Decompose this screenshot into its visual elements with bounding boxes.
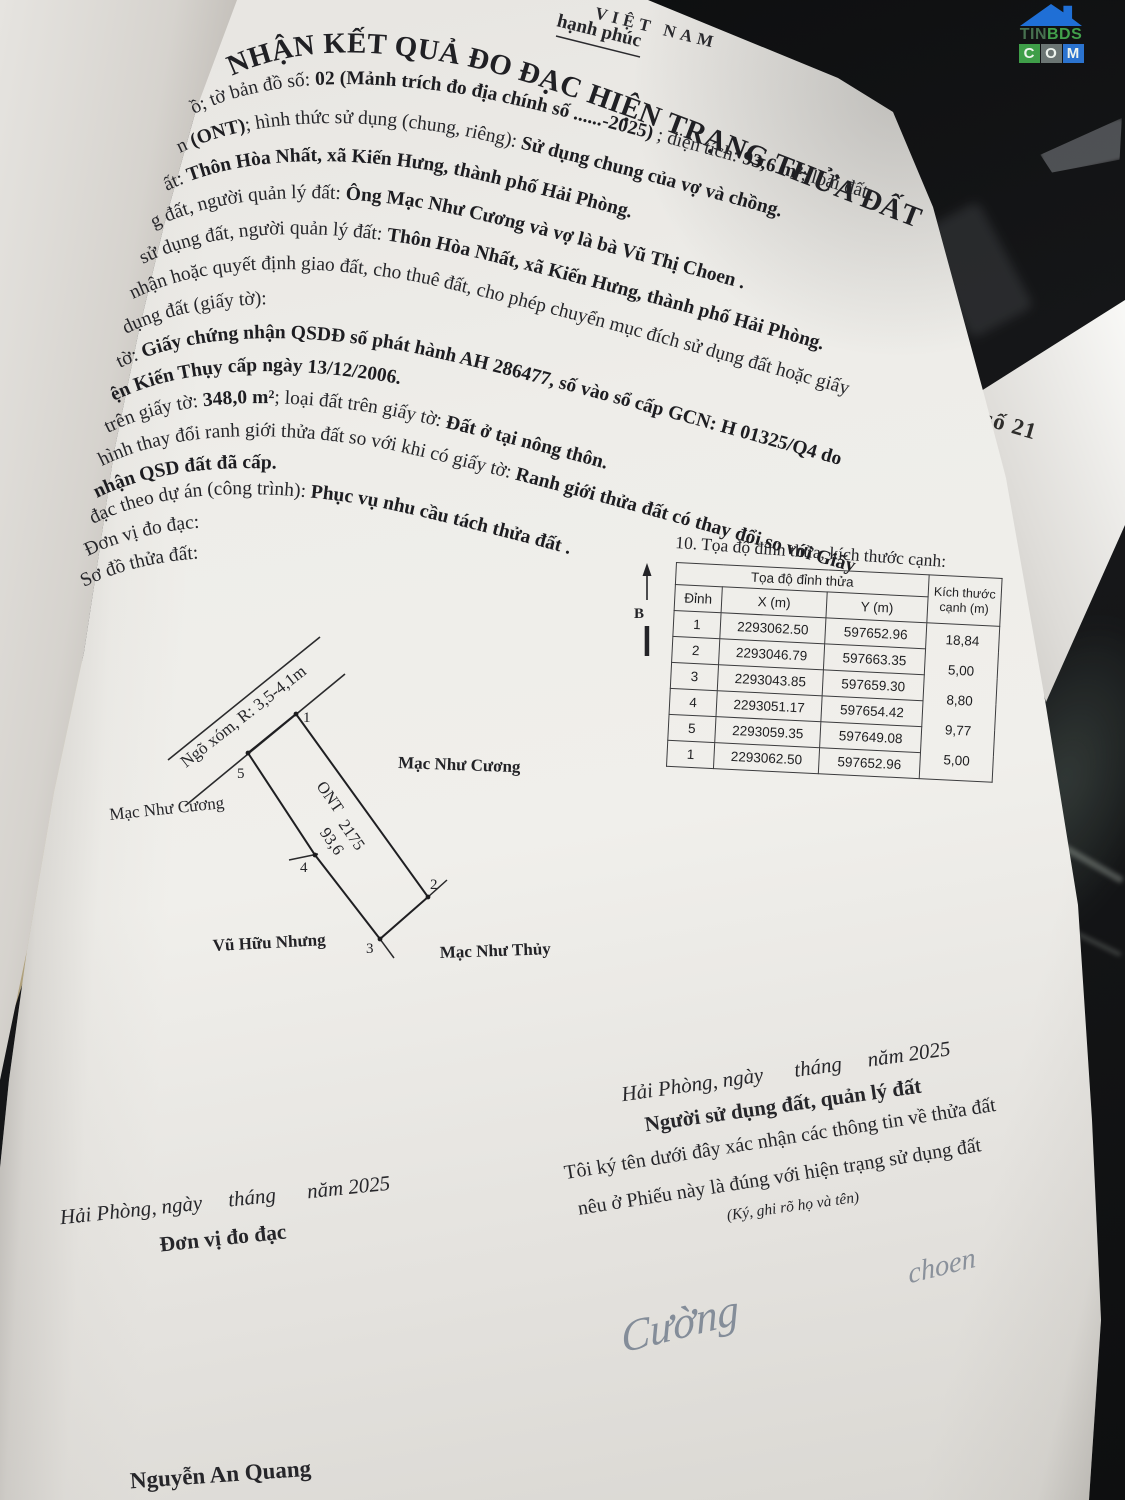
north-arrow-head (643, 563, 652, 576)
edge-length-cell: 18,845,008,809,775,00 (919, 623, 1000, 782)
vertex-point (246, 751, 251, 756)
cell-v: 1 (667, 740, 715, 768)
logo-com: COM (1019, 44, 1084, 63)
cell-v: 2 (672, 636, 720, 664)
neighbor-label-bottom-left: Vũ Hữu Nhưng (212, 930, 326, 955)
edge-length-value: 5,00 (920, 751, 993, 769)
national-header-fragment: VIỆT NAM hạnh phúc (555, 3, 720, 57)
table-col-vertex: Đỉnh (674, 584, 722, 612)
tinbds-watermark: TINBDS COM (1008, 4, 1094, 63)
edge-length-value: 5,00 (925, 661, 998, 679)
cell-v: 1 (673, 610, 721, 638)
vertex-label-5: 5 (237, 766, 245, 782)
vertex-point (378, 937, 383, 942)
north-arrow-tail (645, 626, 650, 656)
edge-length-value: 8,80 (923, 691, 996, 709)
north-arrow: B (634, 563, 652, 656)
road-edge-upper (168, 637, 320, 760)
parcel-diagram: 1 2 3 4 5 Ngõ xóm, R: 3,5-4,1m ONT 2175 … (108, 637, 551, 962)
north-label: B (634, 606, 644, 622)
parcel-land-code: ONT (313, 777, 348, 816)
cell-v: 3 (670, 662, 718, 690)
vertex-point (294, 712, 299, 717)
edge-length-value: 18,84 (926, 631, 999, 649)
cell-x: 2293062.50 (713, 743, 819, 774)
neighbor-label-left: Mạc Như Cương (108, 793, 225, 824)
table-col-edge: Kích thước cạnh (m) (927, 575, 1002, 627)
boundary-tick (380, 939, 394, 958)
cell-y: 597652.96 (818, 748, 920, 779)
coordinate-table: Tọa độ đỉnh thửa Kích thước cạnh (m) Đỉn… (666, 562, 1003, 783)
neighbor-label-right: Mạc Như Cương (398, 753, 521, 776)
vertex-label-4: 4 (300, 860, 308, 876)
road-label: Ngõ xóm, R: 3,5-4,1m (177, 661, 310, 771)
parcel-label: ONT 2175 93,6 (293, 777, 372, 865)
neighbor-label-bottom-right: Mạc Như Thủy (439, 939, 551, 962)
photographed-document: { "logo": {"tin":"TIN","bds":"BDS","c":"… (0, 0, 1125, 1500)
edge-length-value: 9,77 (922, 721, 995, 739)
vertex-label-1: 1 (303, 710, 311, 726)
vertex-label-3: 3 (366, 941, 374, 957)
vertex-point (426, 895, 431, 900)
house-roof-icon (1020, 4, 1082, 26)
logo-word: TINBDS (1020, 27, 1083, 43)
vertex-point (313, 853, 318, 858)
cell-v: 4 (669, 688, 717, 716)
vertex-label-2: 2 (430, 877, 438, 893)
cell-v: 5 (668, 714, 716, 742)
